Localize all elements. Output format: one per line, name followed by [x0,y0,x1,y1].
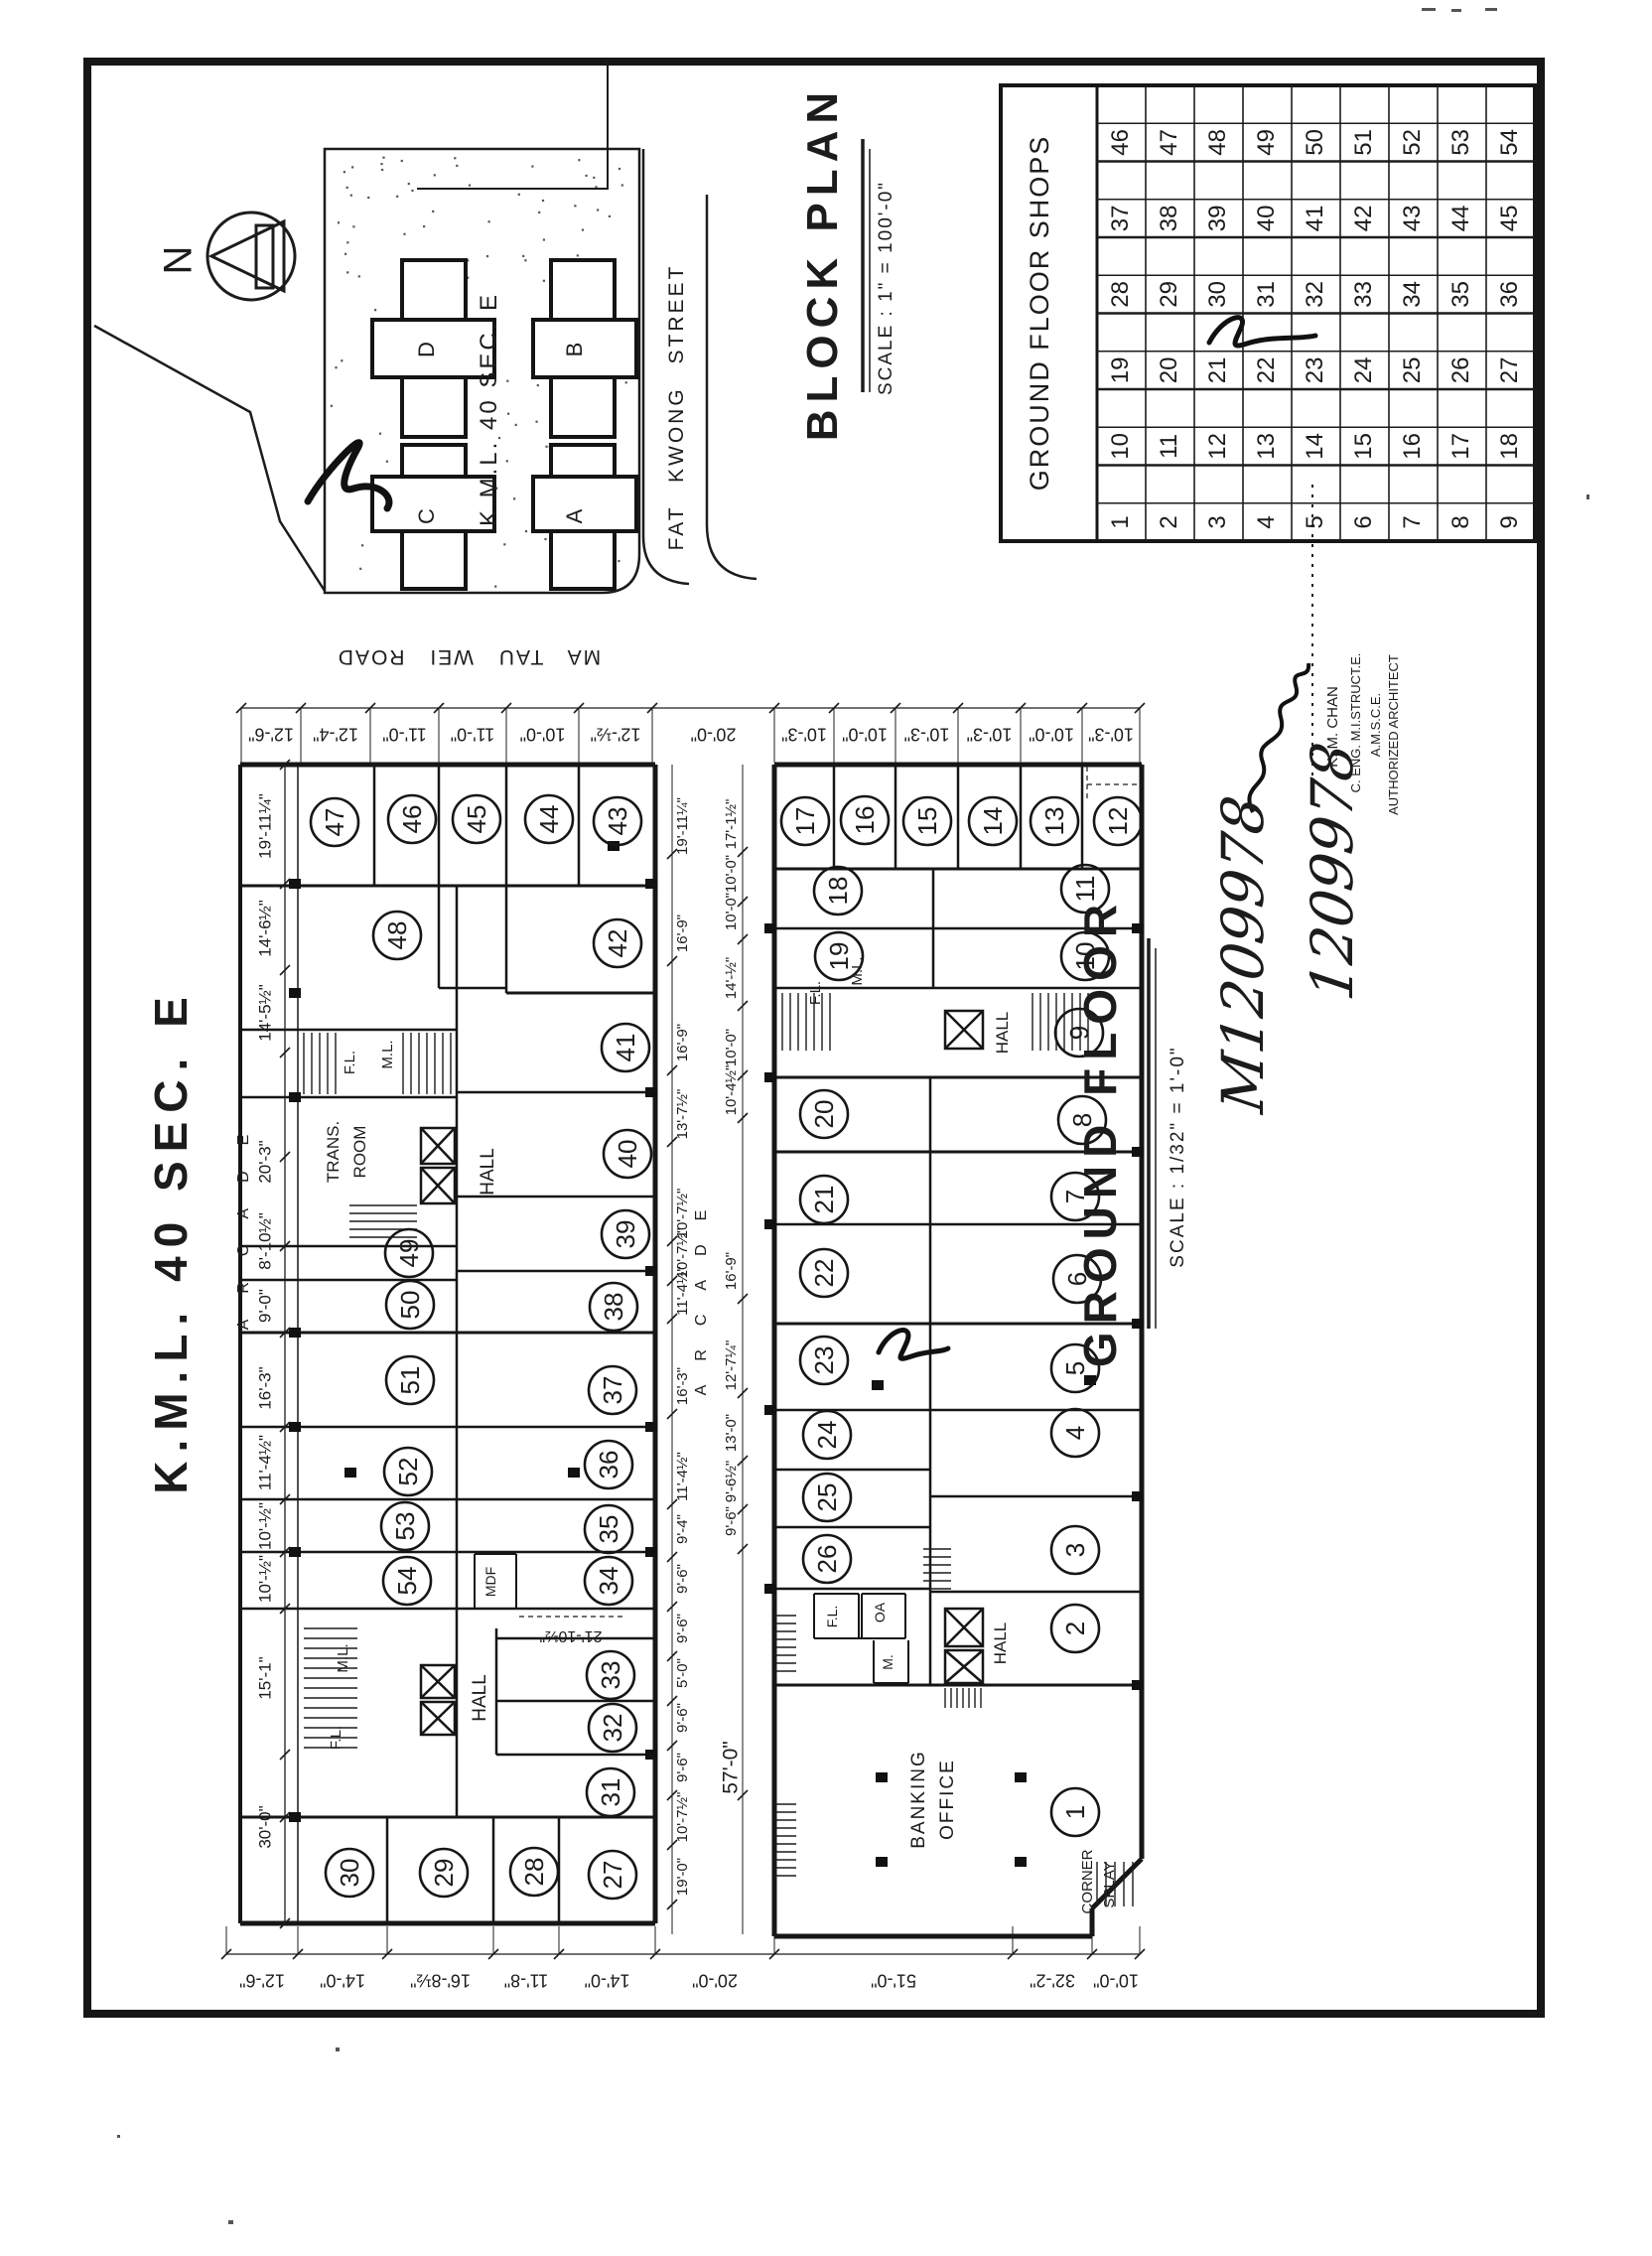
column-pilaster [645,1422,657,1432]
shop-table-cell: 42 [1350,206,1377,232]
hall-label-mid: HALL [470,1674,490,1722]
dimension-text: 13'-0" [723,1414,740,1452]
shop-number: 37 [598,1376,627,1405]
dimension-text: 10'-0" [723,855,740,893]
fl-label-upper: F.L. [342,1051,358,1074]
shop-table-cell: 36 [1496,281,1523,308]
shop-table-cell: 54 [1496,129,1523,156]
column-pilaster [289,1422,301,1432]
shop-table-cell: 6 [1350,515,1377,528]
tower-b-label: B [562,343,587,357]
banking-office-label-1: BANKING [908,1750,929,1849]
shop-table-cell: 47 [1156,129,1182,156]
dimension-text: 57'-0" [720,1741,743,1794]
street-ma-tau-wei-label: MA TAU WEI ROAD [337,645,601,668]
shop-table-cell: 44 [1447,206,1474,232]
dimension-text: 14'-6½" [255,900,274,956]
dimension-text: 10'-3" [967,724,1013,744]
shop-table-cell: 20 [1156,357,1182,384]
dimension-text: 14'-0" [585,1970,630,1990]
column-pilaster [876,1772,888,1782]
column-pilaster [1015,1772,1027,1782]
shop-table-cell: 49 [1253,129,1280,156]
dimension-text: 9'-0" [255,1289,274,1323]
shop-table-cell: 51 [1350,129,1377,156]
fl-label-mid: F.L. [328,1726,344,1750]
dimension-text: 51'-0" [871,1970,916,1990]
shop-table-cell: 3 [1204,515,1231,528]
column-pilaster [344,1468,356,1478]
dimension-text: 9'-6" [674,1703,691,1733]
dimension-text: 20'-0" [692,1970,738,1990]
ml-label-lower-bank: M.L. [849,956,866,985]
banking-office-label-2: OFFICE [937,1759,958,1840]
shop-table-cell: 5 [1302,515,1328,528]
shop-number: 28 [519,1858,549,1887]
column-pilaster [1015,1857,1027,1867]
dimension-text: 8'-10½" [255,1212,274,1269]
dimension-text: 20'-0" [691,724,737,744]
shop-number: 2 [1060,1621,1090,1635]
dimension-text: 11'-4½" [255,1435,274,1490]
column-pilaster [1132,1319,1144,1329]
handwritten-file-number-1: M1209978 [1209,791,1277,1117]
handwritten-mark-plan [879,1331,948,1359]
shop-table-cell: 19 [1107,357,1134,384]
shop-table-cell: 24 [1350,357,1377,384]
shop-number: 18 [823,877,853,906]
shop-number: 15 [912,807,942,836]
shop-number: 46 [397,805,427,834]
column-pilaster [289,879,301,889]
compass-circle-icon [207,212,295,300]
dimension-text: 5'-0" [674,1658,691,1688]
fl-label-lower-bank: F.L. [807,981,824,1005]
dimension-text: 16'-9" [674,1024,691,1061]
shop-table-cell: 1 [1107,515,1134,528]
tower-c-label: C [414,508,439,524]
shop-table-cell: 48 [1204,129,1231,156]
trans-room-label-2: ROOM [350,1126,369,1179]
column-pilaster [764,1584,776,1594]
shop-number: 36 [594,1451,623,1480]
column-pilaster [645,879,657,889]
shop-number: 21 [809,1186,839,1214]
shop-number: 48 [382,921,412,950]
shop-table-cell: 43 [1399,206,1426,232]
dimension-text: 10'-4½" [723,1065,740,1116]
shop-number: 33 [596,1661,625,1690]
shop-number: 38 [599,1293,628,1322]
central-arcade-label: ARCADE [693,1187,710,1396]
dimension-text: 30'-0" [255,1805,274,1848]
dimension-text: 16'-3" [674,1367,691,1405]
mdf-label: MDF [482,1567,498,1597]
site-label: K.M.L. 40 SEC. E [476,292,502,526]
signature-qualification-2: A.M.S.C.E. [1368,693,1383,757]
shop-number: 22 [809,1259,839,1288]
column-pilaster [289,1547,301,1557]
dimension-text: 16'-8½" [410,1970,471,1990]
shop-number: 40 [613,1140,642,1169]
column-pilaster [568,1468,580,1478]
corner-splay-label-1: CORNER [1079,1849,1096,1913]
dimension-text: 14'-0" [320,1970,365,1990]
column-pilaster [289,1812,301,1822]
dimension-text: 13'-7½" [674,1089,691,1140]
dimension-text: 10'-0" [520,724,566,744]
shop-number: 24 [812,1421,842,1450]
column-pilaster [645,1750,657,1760]
column-pilaster [764,1219,776,1229]
dimension-text: 32'-2" [1030,1970,1075,1990]
road-edge-line [94,326,325,591]
dimension-text: 16'-9" [674,915,691,952]
column-pilaster [289,1328,301,1338]
dimension-text: 14'-½" [723,957,740,999]
shop-table-cell: 50 [1302,129,1328,156]
shop-number: 31 [596,1778,625,1807]
shop-table-cell: 35 [1447,281,1474,308]
dimension-text: 14'-5½" [255,984,274,1041]
dimension-text: 9'-6½" [723,1461,740,1502]
shop-number: 14 [978,807,1008,836]
shop-number: 52 [393,1458,423,1486]
drawing-canvas: N D C B A K.M.L. 40 SEC. E MA [0,0,1652,2256]
shop-table-cell: 23 [1302,357,1328,384]
ground-floor-scale: SCALE : 1/32" = 1'-0" [1168,1046,1188,1267]
shop-number: 30 [335,1859,364,1888]
column-pilaster [872,1380,884,1390]
dimension-text: 17'-1½" [723,799,740,850]
m-label: M. [880,1654,895,1670]
shops-table-header: GROUND FLOOR SHOPS [1025,135,1054,492]
dimension-text: 10'-0" [1029,724,1074,744]
ground-floor-title: GROUND FLOOR [1074,897,1126,1367]
shop-table-cell: 32 [1302,281,1328,308]
column-pilaster [645,1266,657,1276]
shop-number: 53 [390,1512,420,1541]
dimension-text: 9'-6" [674,1564,691,1594]
block-plan-title: BLOCK PLAN [798,85,847,441]
shop-table-cell: 34 [1399,281,1426,308]
shop-table-cell: 39 [1204,206,1231,232]
dimension-text: 10'-3" [781,724,827,744]
shop-table-cell: 27 [1496,357,1523,384]
column-pilaster [289,1092,301,1102]
shop-number: 43 [603,807,632,836]
dimension-text: 12'-6" [248,724,294,744]
shop-table-cell: 7 [1399,515,1426,528]
dimension-text: 9'-6" [723,1506,740,1536]
shop-table-cell: 11 [1156,434,1182,459]
shop-number: 12 [1103,807,1133,836]
tower-d-label: D [414,342,439,357]
shop-table-cell: 8 [1447,515,1474,528]
shop-table-cell: 52 [1399,129,1426,156]
shop-table-cell: 25 [1399,357,1426,384]
shop-table-cell: 14 [1302,433,1328,460]
shop-table-cell: 40 [1253,206,1280,232]
dimension-text: 12'-7¼" [723,1340,740,1391]
extra-dim-label: 21'-10½" [540,1627,603,1644]
shop-number: 50 [395,1291,425,1320]
shop-number: 23 [809,1346,839,1375]
dimension-text: 19'-0" [674,1858,691,1896]
hall-label-office-core: HALL [991,1622,1010,1665]
fl-label-bank-office: F.L. [824,1606,840,1628]
dimension-text: 12'-½" [591,724,641,744]
shop-number: 13 [1039,807,1069,836]
shop-number: 4 [1060,1426,1090,1440]
shop-table-cell: 46 [1107,129,1134,156]
shop-number: 32 [598,1714,627,1743]
shop-number: 54 [392,1567,422,1596]
tower-a-label: A [562,508,587,523]
shop-number: 44 [534,805,564,834]
shop-table-cell: 30 [1204,281,1231,308]
shop-number: 34 [594,1567,623,1596]
shop-table-cell: 15 [1350,433,1377,460]
shop-table-cell: 38 [1156,206,1182,232]
shop-number: 41 [611,1034,640,1062]
dimension-text: 19'-11¼" [674,797,691,855]
sheet-big-title: K.M.L. 40 SEC. E [145,988,197,1494]
shop-table-cell: 41 [1302,206,1328,232]
column-pilaster [876,1857,888,1867]
block-plan-scale: SCALE : 1" = 100'-0" [876,181,896,395]
dimension-text: 15'-1" [255,1656,274,1699]
shop-number: 25 [812,1483,842,1512]
scan-specks [117,8,1589,2224]
shop-table-cell: 33 [1350,281,1377,308]
shop-number: 49 [394,1239,424,1268]
shop-table-cell: 29 [1156,281,1182,308]
shop-number: 1 [1060,1805,1090,1819]
shop-table-cell: 37 [1107,206,1134,232]
shop-table-cell: 21 [1204,357,1231,384]
dimension-text: 19'-11¼" [255,793,274,859]
floor-plan: 1234567891011121314151617181920212223242… [221,703,1145,1990]
dimension-text: 10'-0" [842,724,888,744]
shop-number: 45 [462,805,491,834]
shop-table-cell: 31 [1253,281,1280,308]
shop-table-cell: 9 [1496,515,1523,528]
dimension-text: 12'-4" [313,724,358,744]
column-pilaster [645,1547,657,1557]
ground-floor-shops-table: GROUND FLOOR SHOPS 464748495051525354373… [1001,85,1535,541]
shop-table-cell: 26 [1447,357,1474,384]
dimension-text: 16'-9" [723,1252,740,1290]
shop-number: 29 [429,1859,459,1888]
scanned-drawing-sheet: N D C B A K.M.L. 40 SEC. E MA [0,0,1652,2256]
column-pilaster [1132,1147,1144,1157]
dimension-text: 11'-4½" [674,1452,691,1501]
ml-label-upper: M.L. [379,1040,396,1068]
shop-table-cell: 12 [1204,433,1231,460]
shop-table-cell: 16 [1399,433,1426,460]
handwritten-mark-table [1209,318,1315,346]
shop-number: 42 [603,929,632,958]
shop-table-cell: 10 [1107,433,1134,460]
street-kerb-line-outer [707,195,757,579]
north-compass [207,212,295,300]
column-pilaster [1132,923,1144,933]
shop-number: 47 [320,808,349,837]
dimension-text: 10'-0" [1093,1970,1139,1990]
dimension-text: 12'-6" [239,1970,285,1990]
north-label: N [157,246,201,275]
dimension-text: 10'-0" [723,1029,740,1066]
ml-label-mid: M.L. [335,1643,351,1672]
adjacent-block-line [417,62,608,189]
column-pilaster [764,1072,776,1082]
dimension-text: 9'-6" [674,1614,691,1643]
shop-table-cell: 17 [1447,433,1474,460]
shop-table-cell: 13 [1253,433,1280,460]
shop-table-cell: 53 [1447,129,1474,156]
block-plan: D C B A K.M.L. 40 SEC. E MA TAU WEI ROAD… [325,62,757,668]
shop-number: 17 [790,807,820,836]
shop-number: 27 [598,1861,627,1890]
shop-table-cell: 18 [1496,433,1523,460]
dimension-text: 10'-7½" [674,1792,691,1843]
shop-number: 16 [850,806,880,835]
shop-number: 3 [1060,1543,1090,1557]
shop-table-cell: 4 [1253,515,1280,528]
dimension-text: 11'-4½" [674,1266,691,1316]
shop-table-cell: 2 [1156,515,1182,528]
column-pilaster [289,988,301,998]
handwritten-file-number-2: 1209978 [1299,739,1366,1005]
column-pilaster [1132,1680,1144,1690]
corner-splay-label-2: SPLAY [1101,1861,1118,1907]
column-pilaster [1132,1491,1144,1501]
column-pilaster [764,923,776,933]
shop-number: 51 [395,1366,425,1395]
dimension-text: 10'-3" [1088,724,1134,744]
shop-table-cell: 22 [1253,357,1280,384]
dimension-text: 9'-6" [674,1753,691,1782]
hall-label-upper: HALL [478,1148,498,1196]
dimension-text: 10'-0" [723,893,740,930]
dimension-text: 10'-½" [255,1502,274,1550]
oa-label: OA [872,1602,888,1622]
dimension-text: 16'-3" [255,1366,274,1409]
dimension-text: 11'-0" [382,724,427,744]
trans-room-label-1: TRANS. [324,1121,343,1183]
street-arcade-label: ARCADE [235,1109,252,1331]
dimension-text: 20'-3" [255,1140,274,1183]
shop-table-cell: 28 [1107,281,1134,308]
street-fat-kwong-label: FAT KWONG STREET [665,264,688,551]
column-pilaster [645,1087,657,1097]
shop-table-cell: 45 [1496,206,1523,232]
dimension-text: 10'-½" [255,1555,274,1603]
shop-number: 20 [809,1100,839,1129]
shop-number: 39 [611,1220,640,1249]
dimension-text: 10'-3" [904,724,950,744]
column-pilaster [764,1405,776,1415]
shop-number: 26 [812,1545,842,1574]
dimension-text: 11'-0" [451,724,495,744]
authorized-architect-label: AUTHORIZED ARCHITECT [1386,654,1401,815]
shop-number: 35 [594,1515,623,1544]
hall-label-lower-bank: HALL [993,1012,1012,1055]
dimension-text: 11'-8" [504,1970,549,1990]
dimension-text: 9'-4" [674,1514,691,1544]
